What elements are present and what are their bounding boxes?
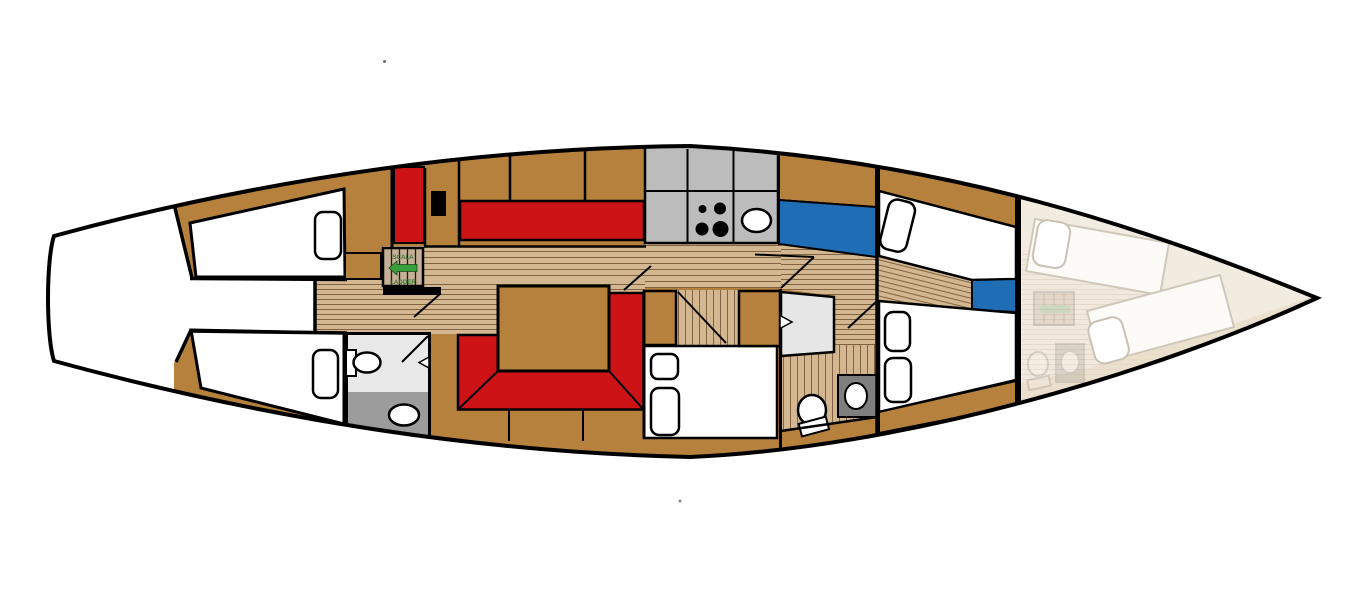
svg-text:SCALA: SCALA [392, 254, 414, 261]
svg-text:LADDER: LADDER [390, 279, 416, 286]
